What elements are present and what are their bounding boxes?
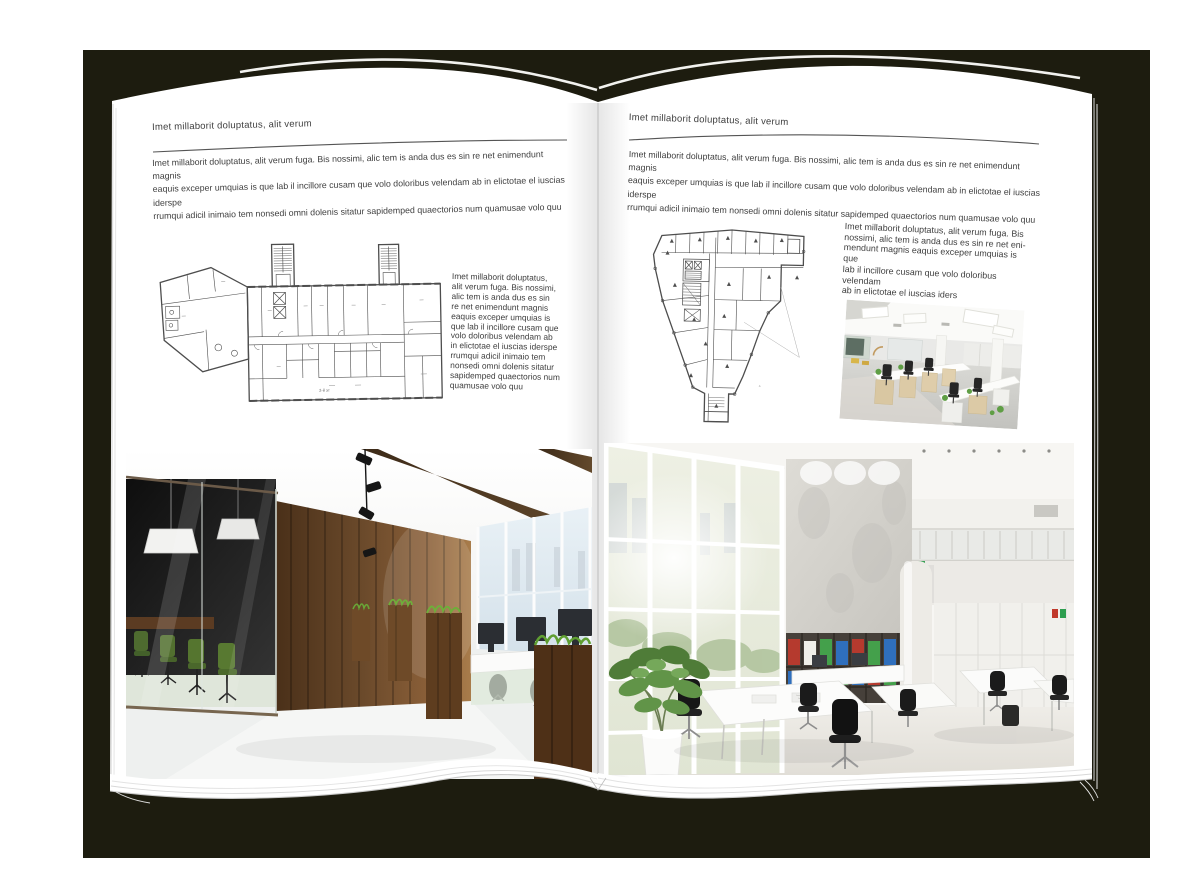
glass-meeting-room [126, 477, 278, 715]
floorplan-left-wing [160, 267, 249, 373]
stair-tower-icon [379, 244, 400, 284]
door-swing-icons [254, 329, 413, 350]
office-photo-bright-atrium [604, 443, 1074, 775]
floorplan-main-block [247, 284, 442, 401]
plan-hall-label: 2-й эт [319, 388, 330, 393]
dimension-marks [181, 278, 427, 388]
window-wall-left [604, 443, 784, 775]
floorplan-wide-building: 2-й эт [157, 237, 450, 416]
bottom-stub [704, 393, 729, 421]
left-intro-paragraph: Imet millaborit doluptatus, alit verum f… [152, 148, 571, 223]
office-photo-loft-meeting-room [126, 449, 592, 779]
office-photo-small-open-space [840, 300, 1025, 430]
right-intro-paragraph: Imet millaborit doluptatus, alit verum f… [627, 148, 1043, 227]
elevator-core-icon [683, 259, 709, 282]
open-brochure-mockup: Imet millaborit doluptatus, alit verum I… [0, 0, 1200, 891]
door-marker-icons [662, 235, 800, 410]
plan-note: ▵ [759, 384, 761, 388]
right-side-text: Imet millaborit doluptatus, alit verum f… [842, 221, 1033, 304]
elevator-core-icon [273, 292, 285, 318]
waste-bin [1002, 705, 1019, 726]
concrete-feature-wall [786, 459, 912, 633]
mezzanine-balcony [912, 499, 1074, 561]
stair-hatch [682, 283, 700, 305]
back-wall-right [912, 561, 1074, 605]
floorplan-tall-building: ▵ [646, 224, 818, 431]
right-header-rule [627, 126, 1041, 150]
left-side-text: Imet millaborit doluptatus, alit verum f… [450, 272, 572, 393]
stair-tower-icon [272, 244, 295, 286]
